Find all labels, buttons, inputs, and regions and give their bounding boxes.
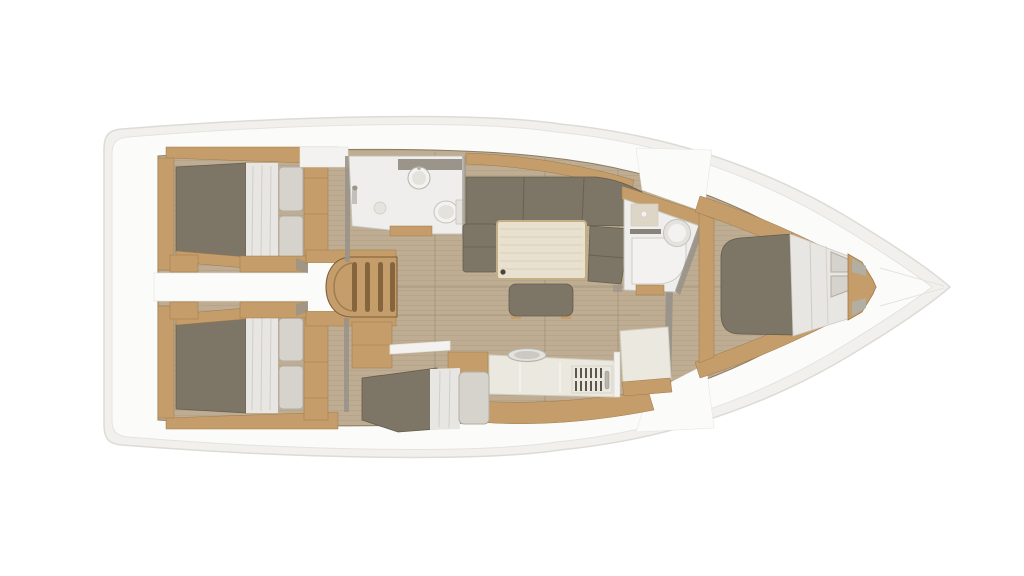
counter-end-panel: [614, 352, 620, 397]
step-joinery: [170, 255, 198, 272]
bedside-joinery: [304, 311, 328, 420]
door-sill: [390, 226, 432, 236]
pillow: [459, 372, 489, 424]
step-gap: [365, 262, 370, 312]
door-frame-joinery: [699, 213, 714, 363]
chart-table-top: [620, 327, 671, 383]
berth-blanket: [362, 368, 437, 432]
bulkhead-wall: [344, 318, 349, 412]
faucet: [417, 166, 421, 170]
bottle: [605, 371, 609, 389]
step-joinery: [170, 302, 198, 319]
sink-bowl: [412, 171, 426, 185]
corridor: [154, 273, 320, 301]
bedside-joinery: [304, 152, 328, 265]
shower-drain: [374, 202, 386, 214]
bed-blanket: [176, 163, 246, 259]
vent-slot: [630, 229, 661, 234]
toilet-lid: [438, 205, 454, 219]
sink-drain: [641, 211, 647, 217]
hull-joinery: [158, 306, 174, 418]
table-leg-dot: [500, 269, 505, 274]
bench-seat: [509, 284, 573, 316]
locker-top: [300, 147, 348, 167]
door-sill: [636, 285, 664, 295]
step-gap: [390, 262, 395, 312]
floor-plan-canvas: [0, 0, 1024, 576]
vanity-strip: [398, 159, 462, 170]
step-gap: [352, 262, 357, 312]
bed-blanket: [721, 234, 795, 335]
hull-joinery: [158, 158, 174, 270]
shower-knob: [353, 186, 358, 191]
galley-sink-bowl: [514, 351, 540, 359]
mast-foot: [613, 285, 622, 292]
sofa-left-arm: [463, 224, 497, 272]
companionway: [154, 250, 397, 326]
step-gap: [378, 262, 383, 312]
sofa-back: [466, 177, 642, 226]
pillow: [279, 366, 303, 409]
yacht-floor-plan: [0, 0, 1024, 576]
companionway-steps: [326, 257, 397, 317]
saloon-table: [497, 221, 586, 279]
pillow: [279, 216, 303, 259]
pillow: [279, 318, 303, 361]
bed-blanket: [176, 317, 246, 413]
pillow: [279, 167, 303, 211]
berth-sheet: [430, 368, 460, 430]
toilet-lid: [668, 224, 686, 242]
